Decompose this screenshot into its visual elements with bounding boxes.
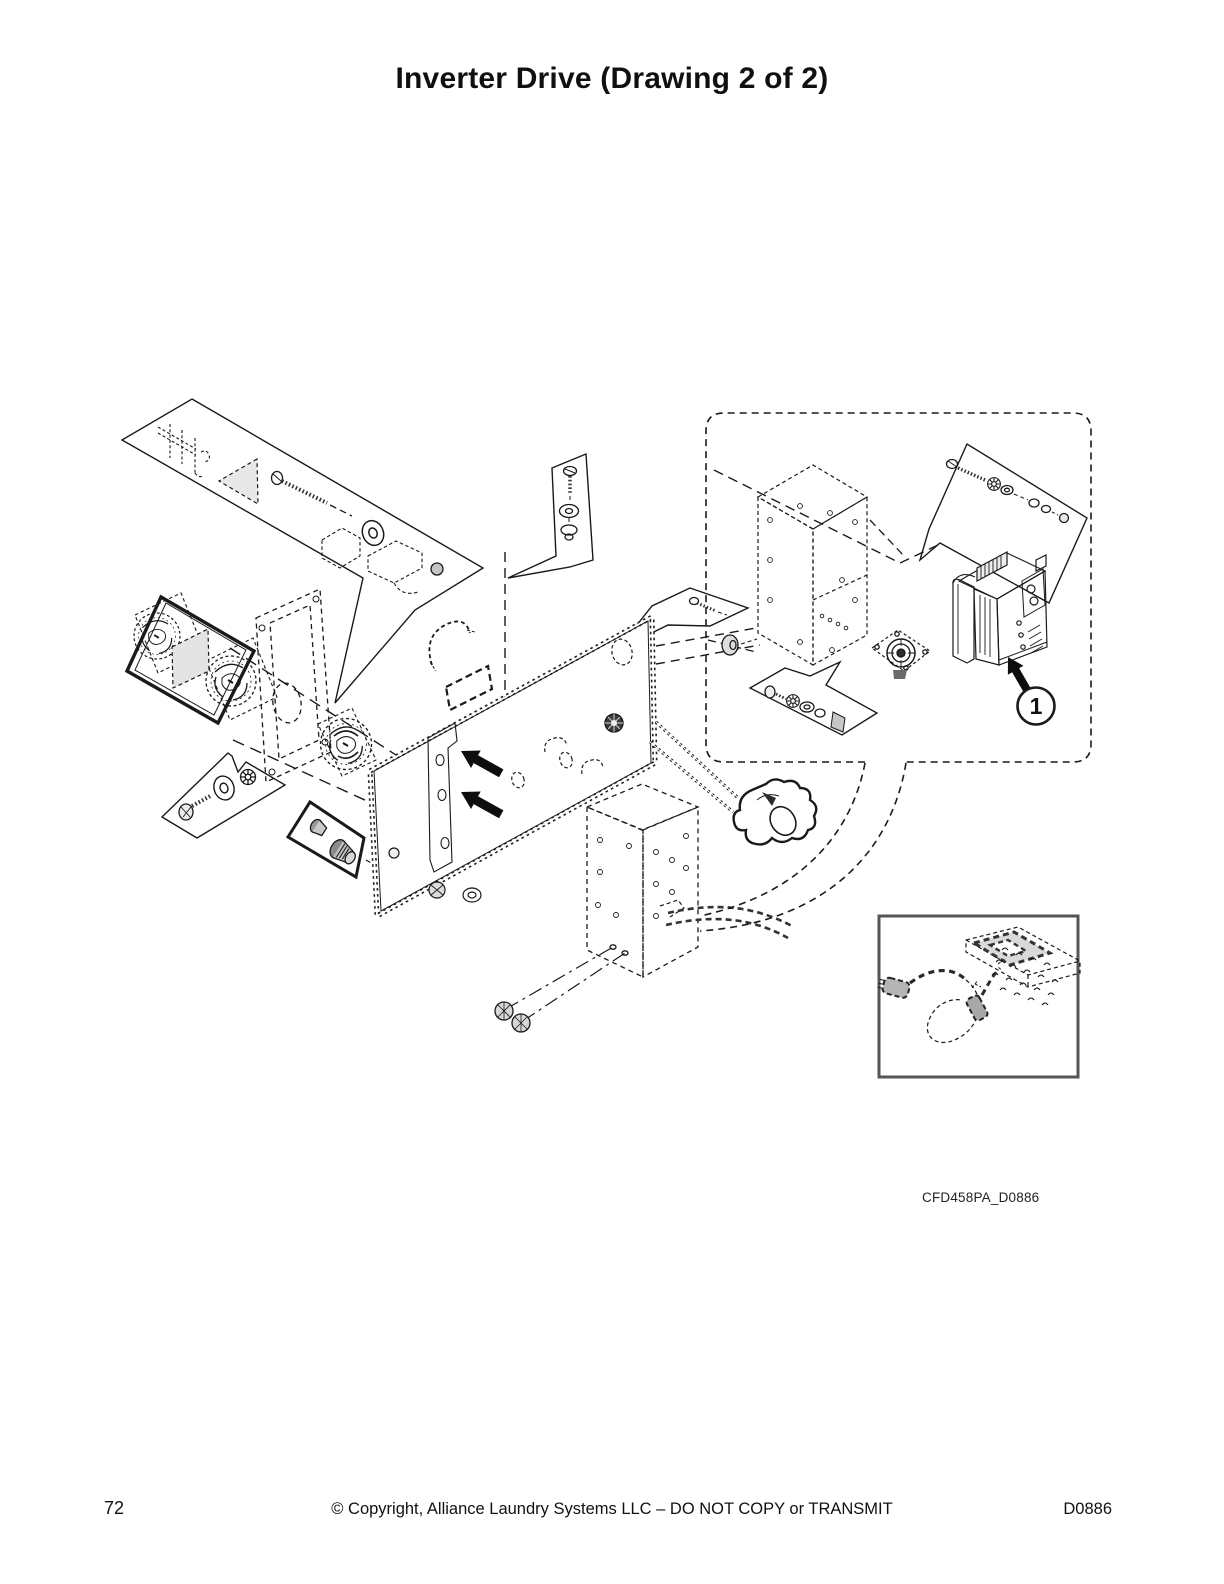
manual-page: Inverter Drive (Drawing 2 of 2): [0, 0, 1224, 1584]
hardware-callout-bottom: [750, 662, 877, 735]
panel-cutout: [446, 666, 492, 710]
fan-gasket: [172, 629, 209, 688]
document-number: D0886: [1063, 1500, 1112, 1519]
fan-assembly-box: [127, 593, 277, 723]
threaded-rod: [272, 472, 353, 517]
page-footer: 72 © Copyright, Alliance Laundry Systems…: [0, 1498, 1224, 1528]
callout-1-number: 1: [1030, 693, 1043, 719]
detail-callout-box: 1: [700, 413, 1091, 931]
screw-callout-tall: [508, 454, 593, 578]
hardware-callout-left: [162, 753, 285, 838]
main-mounting-panel: [370, 617, 655, 916]
inverter-drive-unit: [953, 552, 1047, 665]
ball-stud: [431, 563, 443, 575]
grommet-part: [734, 779, 817, 844]
fittings-panel: [288, 802, 380, 877]
exploded-diagram: 1: [0, 0, 1224, 1584]
cable-kit-box: [877, 916, 1080, 1077]
hardware-callout-top: [920, 444, 1087, 603]
plug-grommet: [722, 635, 757, 655]
drive-mounting-box: [758, 465, 867, 665]
lower-enclosure: [587, 784, 792, 977]
washer: [359, 517, 388, 548]
baffle-triangle: [219, 459, 258, 504]
inverter-wire: [660, 900, 792, 938]
figure-code: CFD458PA_D0886: [922, 1190, 1039, 1205]
beaded-rails: [650, 722, 737, 812]
knurled-nut: [605, 714, 623, 732]
drive-motor: [872, 630, 930, 679]
bracket-parts: [158, 424, 209, 477]
copyright-notice: © Copyright, Alliance Laundry Systems LL…: [0, 1500, 1224, 1519]
mounting-bolts: [495, 945, 628, 1032]
mounting-frame: [256, 589, 331, 782]
wire-clamp: [429, 621, 470, 665]
callout-1: 1: [1018, 688, 1055, 725]
fan-impeller-loose: [318, 708, 376, 776]
